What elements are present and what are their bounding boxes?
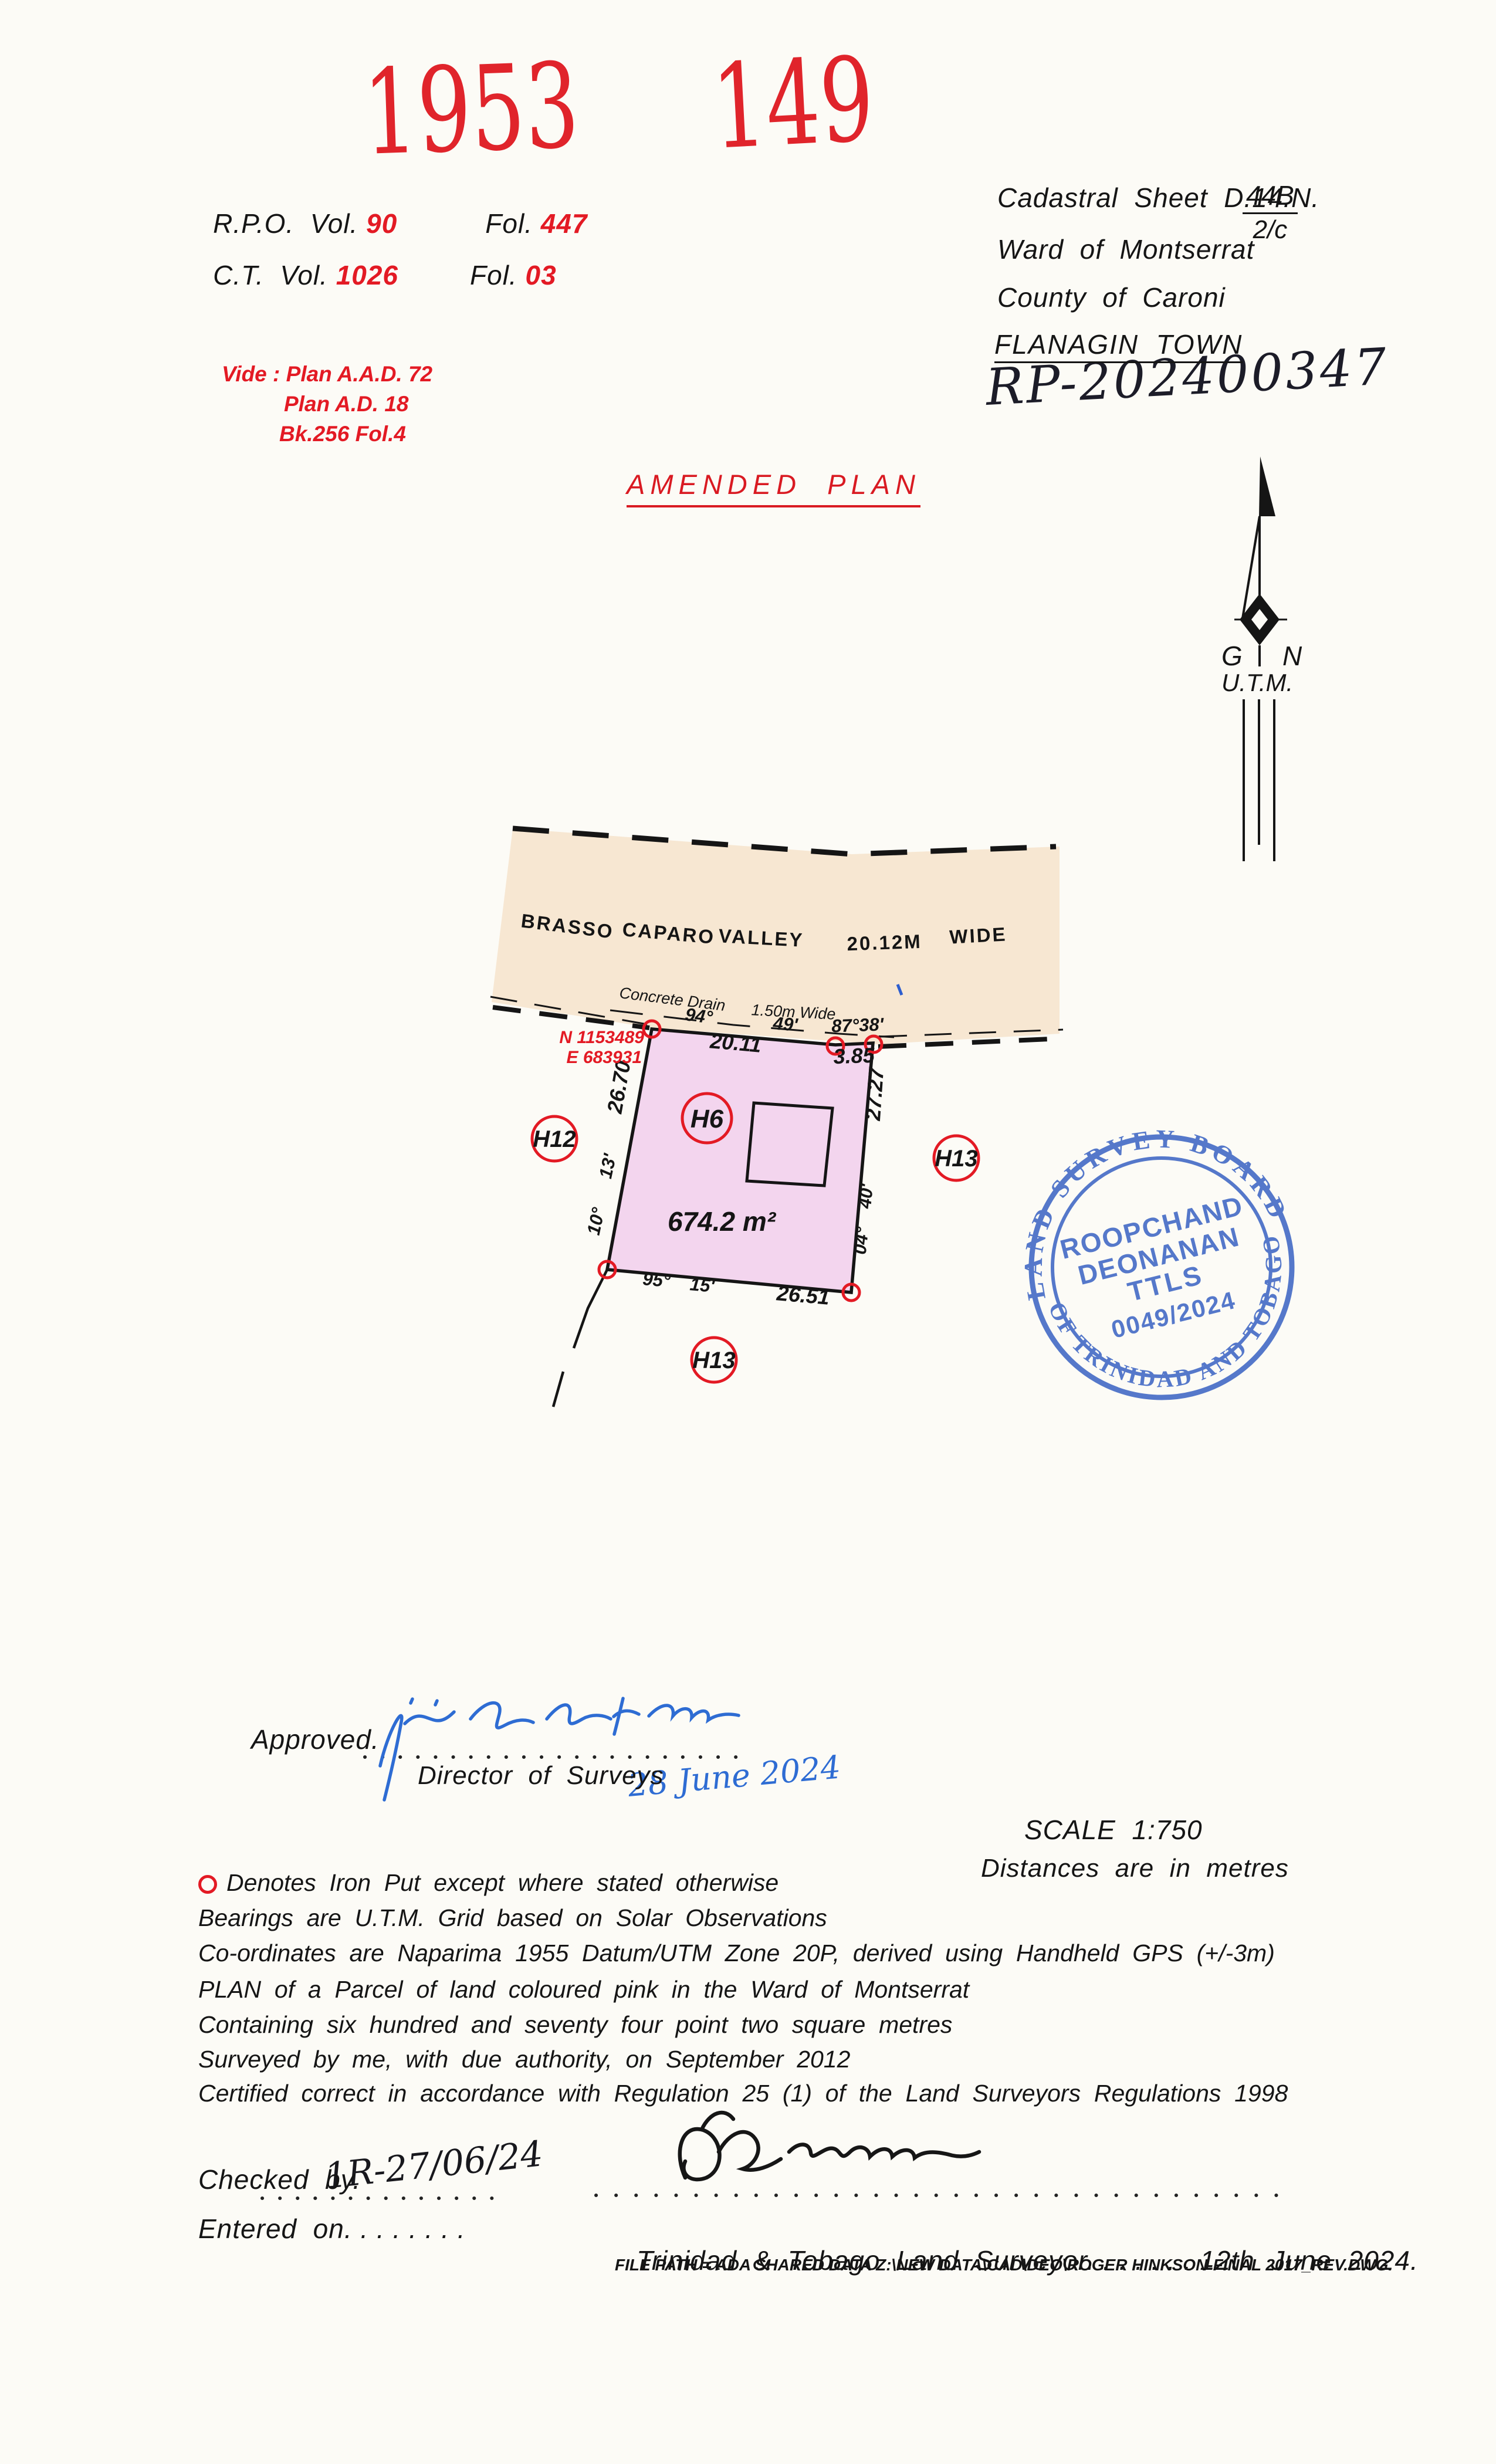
brg-right-min: 40' xyxy=(854,1182,877,1210)
utm-label: U.T.M. xyxy=(1221,669,1293,696)
brg-top-deg: 94° xyxy=(684,1004,714,1028)
north-arrow-head xyxy=(1259,456,1275,516)
lot-label: H6 xyxy=(691,1105,724,1133)
north-label: N xyxy=(1282,641,1302,671)
parcel-area-label: 674.2 m² xyxy=(668,1206,777,1237)
brg-bottom-min: 15' xyxy=(689,1274,716,1297)
checked-by-label: Checked by. xyxy=(198,2164,361,2195)
ct-volume: 1026 xyxy=(336,260,398,290)
neighbour-bottom-label: H13 xyxy=(692,1348,735,1373)
dist-top-right: 3.85 xyxy=(833,1043,875,1068)
town-label: FLANAGIN TOWN xyxy=(994,329,1243,360)
county-label: County of Caroni xyxy=(997,282,1226,313)
vide-line-1: Vide : Plan A.A.D. 72 xyxy=(222,359,432,389)
road-name-word3: VALLEY xyxy=(718,925,804,951)
handwritten-year-stamp: 1953 xyxy=(361,38,581,182)
boundary-extension-stub xyxy=(553,1372,563,1407)
brg-left-deg: 10° xyxy=(583,1206,609,1237)
neighbour-right-label: H13 xyxy=(935,1146,977,1172)
vide-line-3: Bk.256 Fol.4 xyxy=(222,419,432,449)
scale-label: SCALE 1:750 xyxy=(1024,1814,1203,1846)
vide-block: Vide : Plan A.A.D. 72 Plan A.D. 18 Bk.25… xyxy=(222,359,432,449)
note-certified: Certified correct in accordance with Reg… xyxy=(198,2080,1288,2107)
north-grid-label: G xyxy=(1221,641,1243,671)
coordinate-northing: N 1153489 xyxy=(559,1028,644,1047)
handwritten-number-stamp: 149 xyxy=(709,32,877,175)
ct-label: C.T. Vol. xyxy=(213,260,328,290)
note-coordinates: Co-ordinates are Naparima 1955 Datum/UTM… xyxy=(198,1940,1275,1967)
land-survey-board-stamp: LAND SURVEY BOARD OF TRINIDAD AND TOBAGO… xyxy=(982,1087,1338,1435)
director-title: Director of Surveys xyxy=(418,1761,664,1791)
note-iron-put-text: Denotes Iron Put except where stated oth… xyxy=(226,1869,779,1896)
road-width-word: WIDE xyxy=(949,923,1007,947)
brg-top-right: 87°38' xyxy=(831,1014,885,1036)
brg-left-min: 13' xyxy=(595,1151,620,1180)
note-containing-area: Containing six hundred and seventy four … xyxy=(198,2011,952,2039)
survey-plan-sheet: 1953 149 RP-202400347 G N U.T.M. xyxy=(0,0,1496,2464)
distance-units-label: Distances are in metres xyxy=(981,1854,1289,1883)
sheet-number-top: 44B xyxy=(1243,180,1298,214)
brg-right-deg: 04° xyxy=(849,1226,873,1255)
ct-reference-line: C.T. Vol. 1026Fol. 03 xyxy=(181,228,557,323)
ct-folio: 03 xyxy=(526,260,557,290)
ward-label: Ward of Montserrat xyxy=(997,233,1254,265)
dist-top: 20.11 xyxy=(709,1028,763,1057)
amended-plan-title: AMENDED PLAN xyxy=(627,468,920,507)
surveyor-signature xyxy=(680,2113,979,2179)
parcel-area xyxy=(607,1029,873,1292)
note-bearings: Bearings are U.T.M. Grid based on Solar … xyxy=(198,1904,827,1932)
iron-put-symbol xyxy=(198,1875,217,1894)
entered-on-label: Entered on. . . . . . . . xyxy=(198,2213,466,2245)
dist-right: 27.27 xyxy=(861,1066,888,1122)
brg-top-min: 49' xyxy=(772,1013,800,1035)
note-surveyed-by: Surveyed by me, with due authority, on S… xyxy=(198,2046,850,2073)
boundary-extension-line xyxy=(574,1270,607,1348)
note-plan-description: PLAN of a Parcel of land coloured pink i… xyxy=(198,1976,969,2003)
dist-bottom: 26.51 xyxy=(775,1281,830,1309)
neighbour-left-label: H12 xyxy=(533,1126,576,1152)
brg-bottom-deg: 95° xyxy=(642,1268,671,1291)
town-text: FLANAGIN TOWN xyxy=(994,329,1243,363)
note-iron-put: Denotes Iron Put except where stated oth… xyxy=(198,1869,779,1897)
file-path-label: FILE PATH = ADA SHARED DATA Z:\NEW DATA\… xyxy=(615,2256,1393,2275)
ct-fol-label: Fol. xyxy=(470,260,517,290)
road-width-value: 20.12M xyxy=(847,930,922,955)
approved-label: Approved. xyxy=(251,1724,380,1755)
vide-line-2: Plan A.D. 18 xyxy=(222,389,432,419)
dist-left: 26.70 xyxy=(603,1059,635,1116)
coordinate-easting: E 683931 xyxy=(567,1048,642,1067)
